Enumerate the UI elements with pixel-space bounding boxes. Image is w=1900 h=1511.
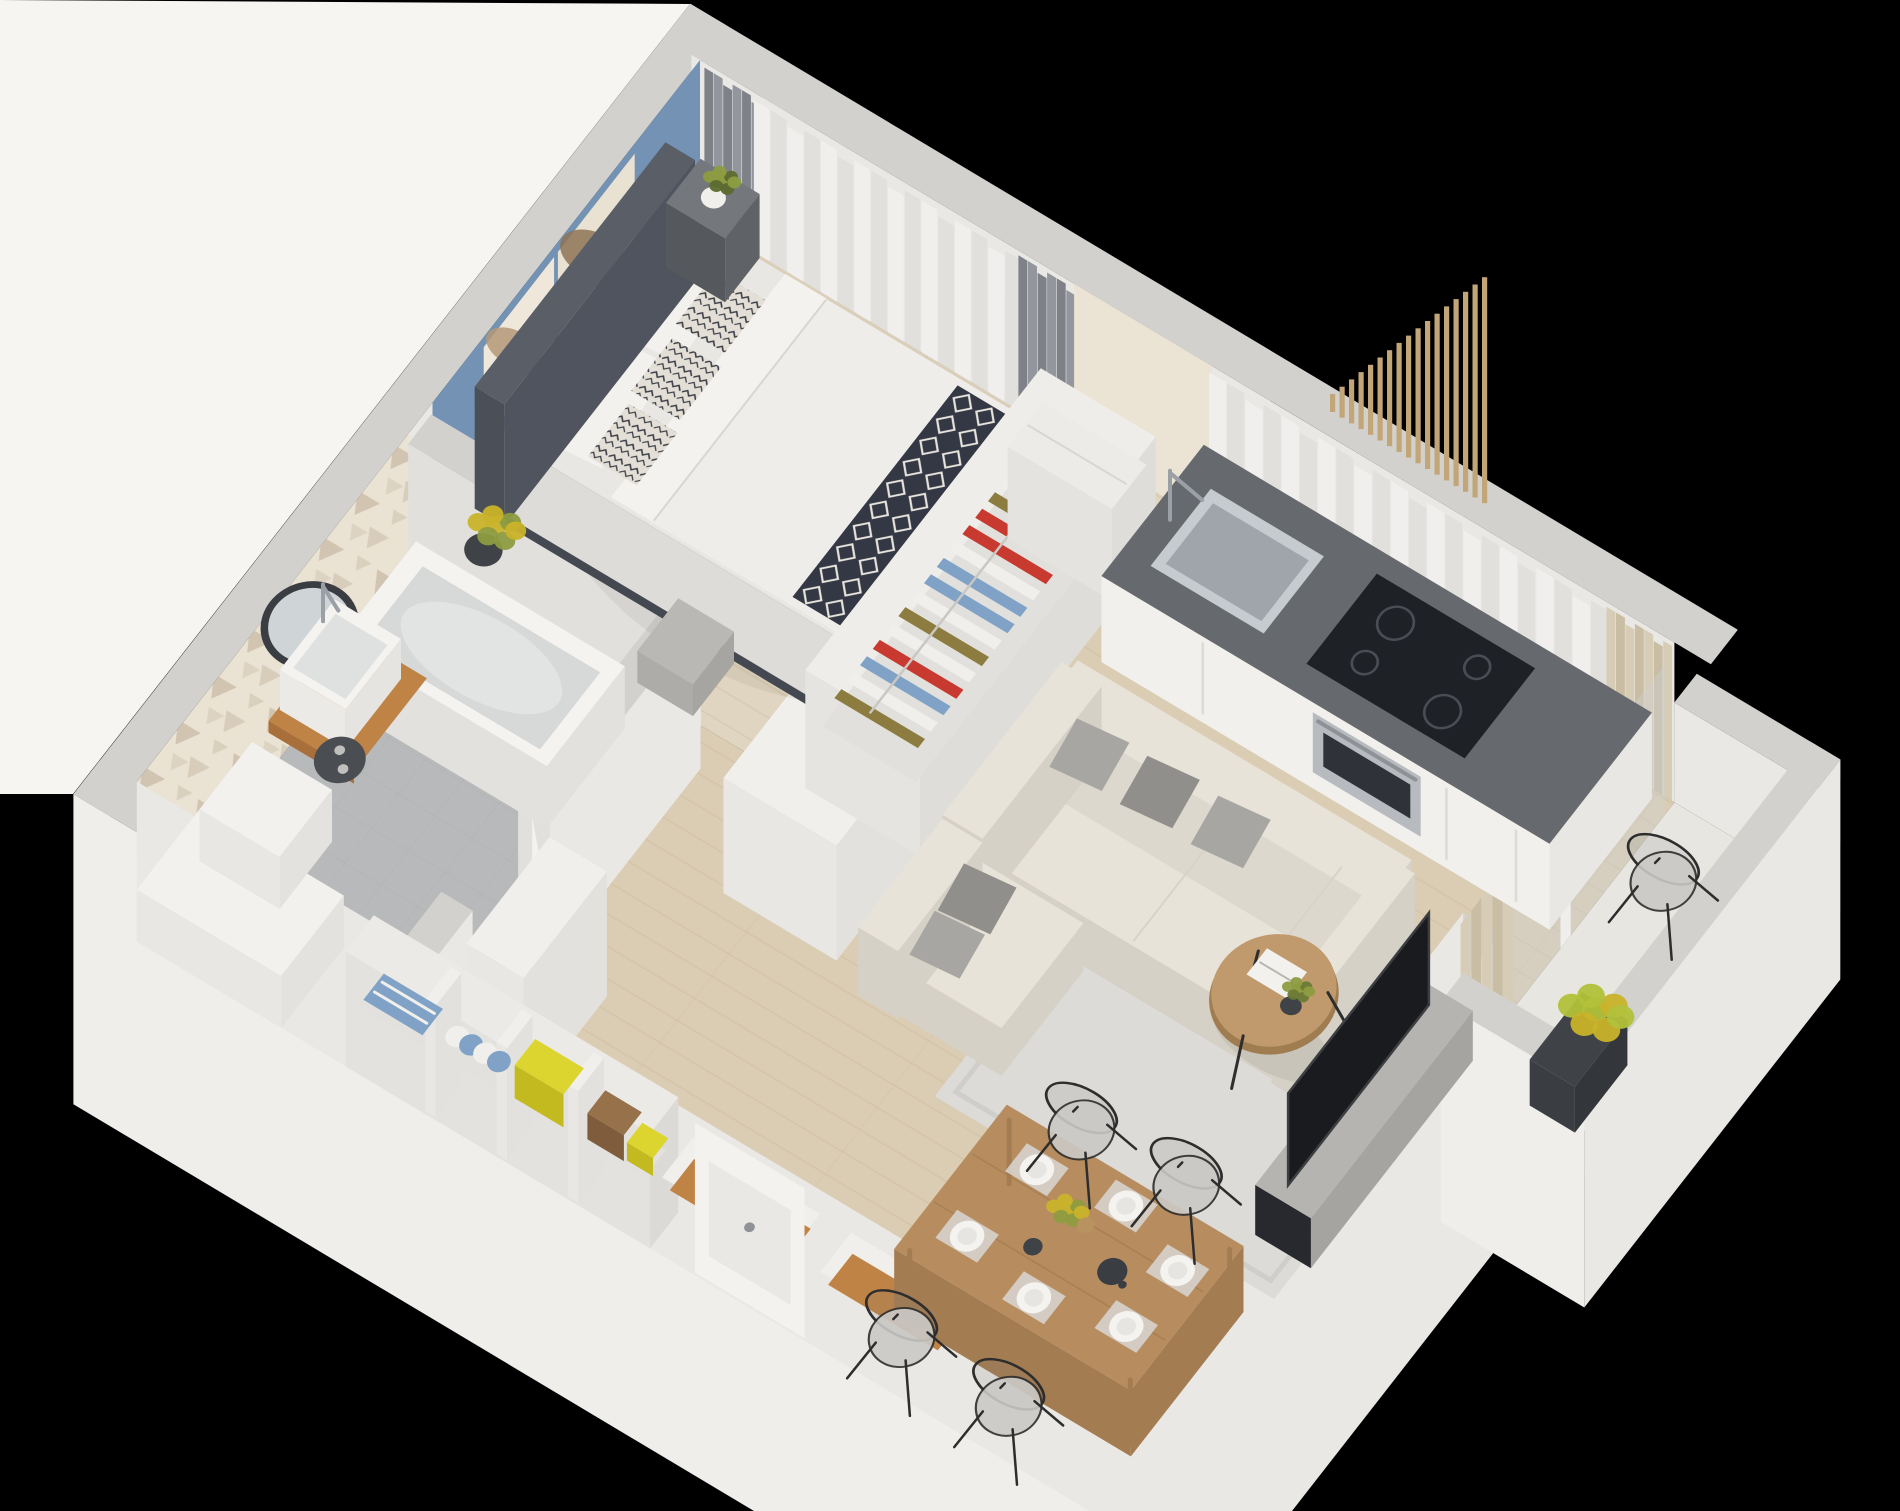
wood-slat-screen-slat-11 xyxy=(1435,314,1440,475)
bedroom-sheer-curtain-fold-7 xyxy=(871,170,887,331)
bedroom-sheer-curtain-fold-9 xyxy=(905,190,921,351)
bedroom-sheer-curtain-fold-13 xyxy=(972,230,988,391)
bedroom-sheer-curtain-fold-10 xyxy=(921,200,937,361)
bedroom-sheer-curtain-fold-4 xyxy=(821,140,837,301)
bedroom-sheer-curtain-fold-11 xyxy=(938,216,954,371)
wood-slat-screen-slat-1 xyxy=(1340,387,1345,418)
closet-divider-3-side-s xyxy=(568,1085,578,1203)
wood-slat-screen-slat-6 xyxy=(1387,350,1392,446)
wood-slat-screen-slat-7 xyxy=(1397,343,1402,452)
wood-slat-screen-slat-10 xyxy=(1425,321,1430,469)
wood-slat-screen-slat-4 xyxy=(1368,365,1373,435)
bedroom-sheer-curtain-fold-14 xyxy=(988,246,1004,401)
cabinet-seam-2 xyxy=(1445,787,1448,861)
wood-slat-screen-slat-9 xyxy=(1416,328,1421,463)
wood-slat-screen-slat-12 xyxy=(1444,306,1449,480)
bedroom-sheer-curtain-fold-1 xyxy=(771,110,787,271)
bedroom-sheer-curtain-fold-5 xyxy=(838,156,854,311)
wood-slat-screen-slat-15 xyxy=(1473,285,1478,498)
bedroom-sheer-curtain-fold-2 xyxy=(787,126,803,281)
bed-headboard-side-s xyxy=(475,387,505,527)
bedroom-sheer-curtain-fold-6 xyxy=(854,160,870,321)
wood-slat-screen-slat-0 xyxy=(1330,394,1335,412)
wood-slat-screen-slat-14 xyxy=(1463,292,1468,492)
cabinet-seam-1 xyxy=(1202,642,1205,716)
wood-slat-screen-slat-5 xyxy=(1378,358,1383,441)
bedroom-sheer-curtain-fold-8 xyxy=(888,186,904,341)
floor-plan-3d-render: 3D isometric floor plan render — one-bed… xyxy=(0,0,1900,1511)
wood-slat-screen-slat-13 xyxy=(1454,299,1459,486)
wood-slat-screen-slat-8 xyxy=(1406,336,1411,458)
floor-plan-stage: 3D isometric floor plan render — one-bed… xyxy=(0,0,1900,1511)
wood-slat-screen-slat-3 xyxy=(1359,372,1364,429)
cabinet-seam-3 xyxy=(1515,829,1518,903)
wood-slat-screen-slat-2 xyxy=(1349,379,1354,423)
bedroom-sheer-curtain-fold-3 xyxy=(804,130,820,291)
bedroom-sheer-curtain-fold-12 xyxy=(955,220,971,381)
wood-slat-screen-slat-16 xyxy=(1482,277,1487,503)
